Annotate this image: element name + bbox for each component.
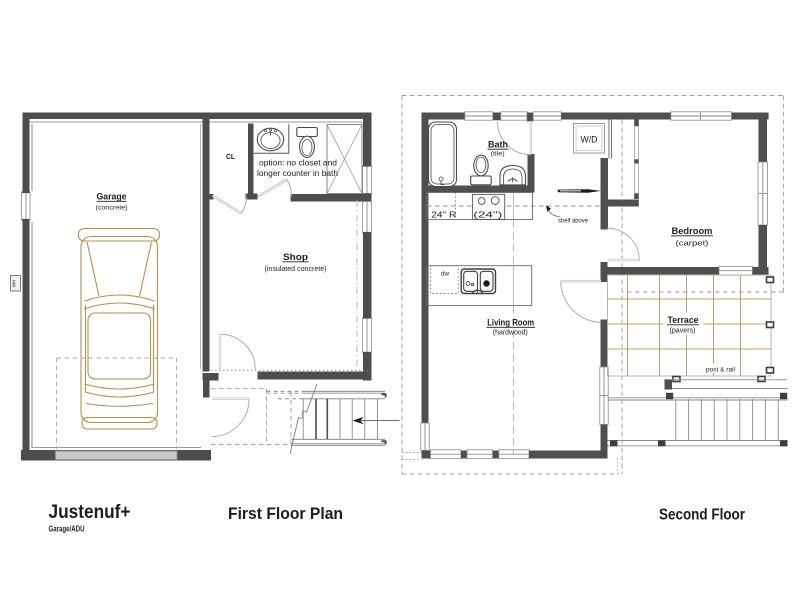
svg-text:First Floor Plan: First Floor Plan xyxy=(228,505,343,523)
svg-text:option: no closet and: option: no closet and xyxy=(259,159,337,168)
svg-text:(insulated concrete): (insulated concrete) xyxy=(265,266,327,273)
svg-text:Garage/ADU: Garage/ADU xyxy=(49,525,85,534)
svg-text:Bedroom: Bedroom xyxy=(672,226,713,236)
svg-text:post & rail: post & rail xyxy=(706,367,735,374)
svg-text:(pavers): (pavers) xyxy=(670,328,696,335)
svg-text:(carpet): (carpet) xyxy=(676,241,709,248)
svg-text:CL: CL xyxy=(226,152,235,161)
svg-text:Bath: Bath xyxy=(488,140,508,150)
svg-text:dw: dw xyxy=(441,271,450,278)
svg-text:WH: WH xyxy=(12,280,17,288)
svg-text:W/D: W/D xyxy=(581,135,598,146)
svg-text:Garage: Garage xyxy=(97,192,127,202)
svg-text:shelf above: shelf above xyxy=(558,218,588,225)
svg-text:(24"): (24") xyxy=(473,211,503,220)
svg-text:(hardwood): (hardwood) xyxy=(493,330,528,337)
svg-text:(concrete): (concrete) xyxy=(96,205,128,212)
svg-text:Second Floor: Second Floor xyxy=(659,507,745,524)
svg-text:24" R: 24" R xyxy=(431,211,456,220)
svg-text:Justenuf+: Justenuf+ xyxy=(49,502,131,523)
svg-text:longer counter in bath: longer counter in bath xyxy=(257,169,338,178)
svg-text:Terrace: Terrace xyxy=(668,315,699,325)
svg-text:(tile): (tile) xyxy=(491,151,505,158)
